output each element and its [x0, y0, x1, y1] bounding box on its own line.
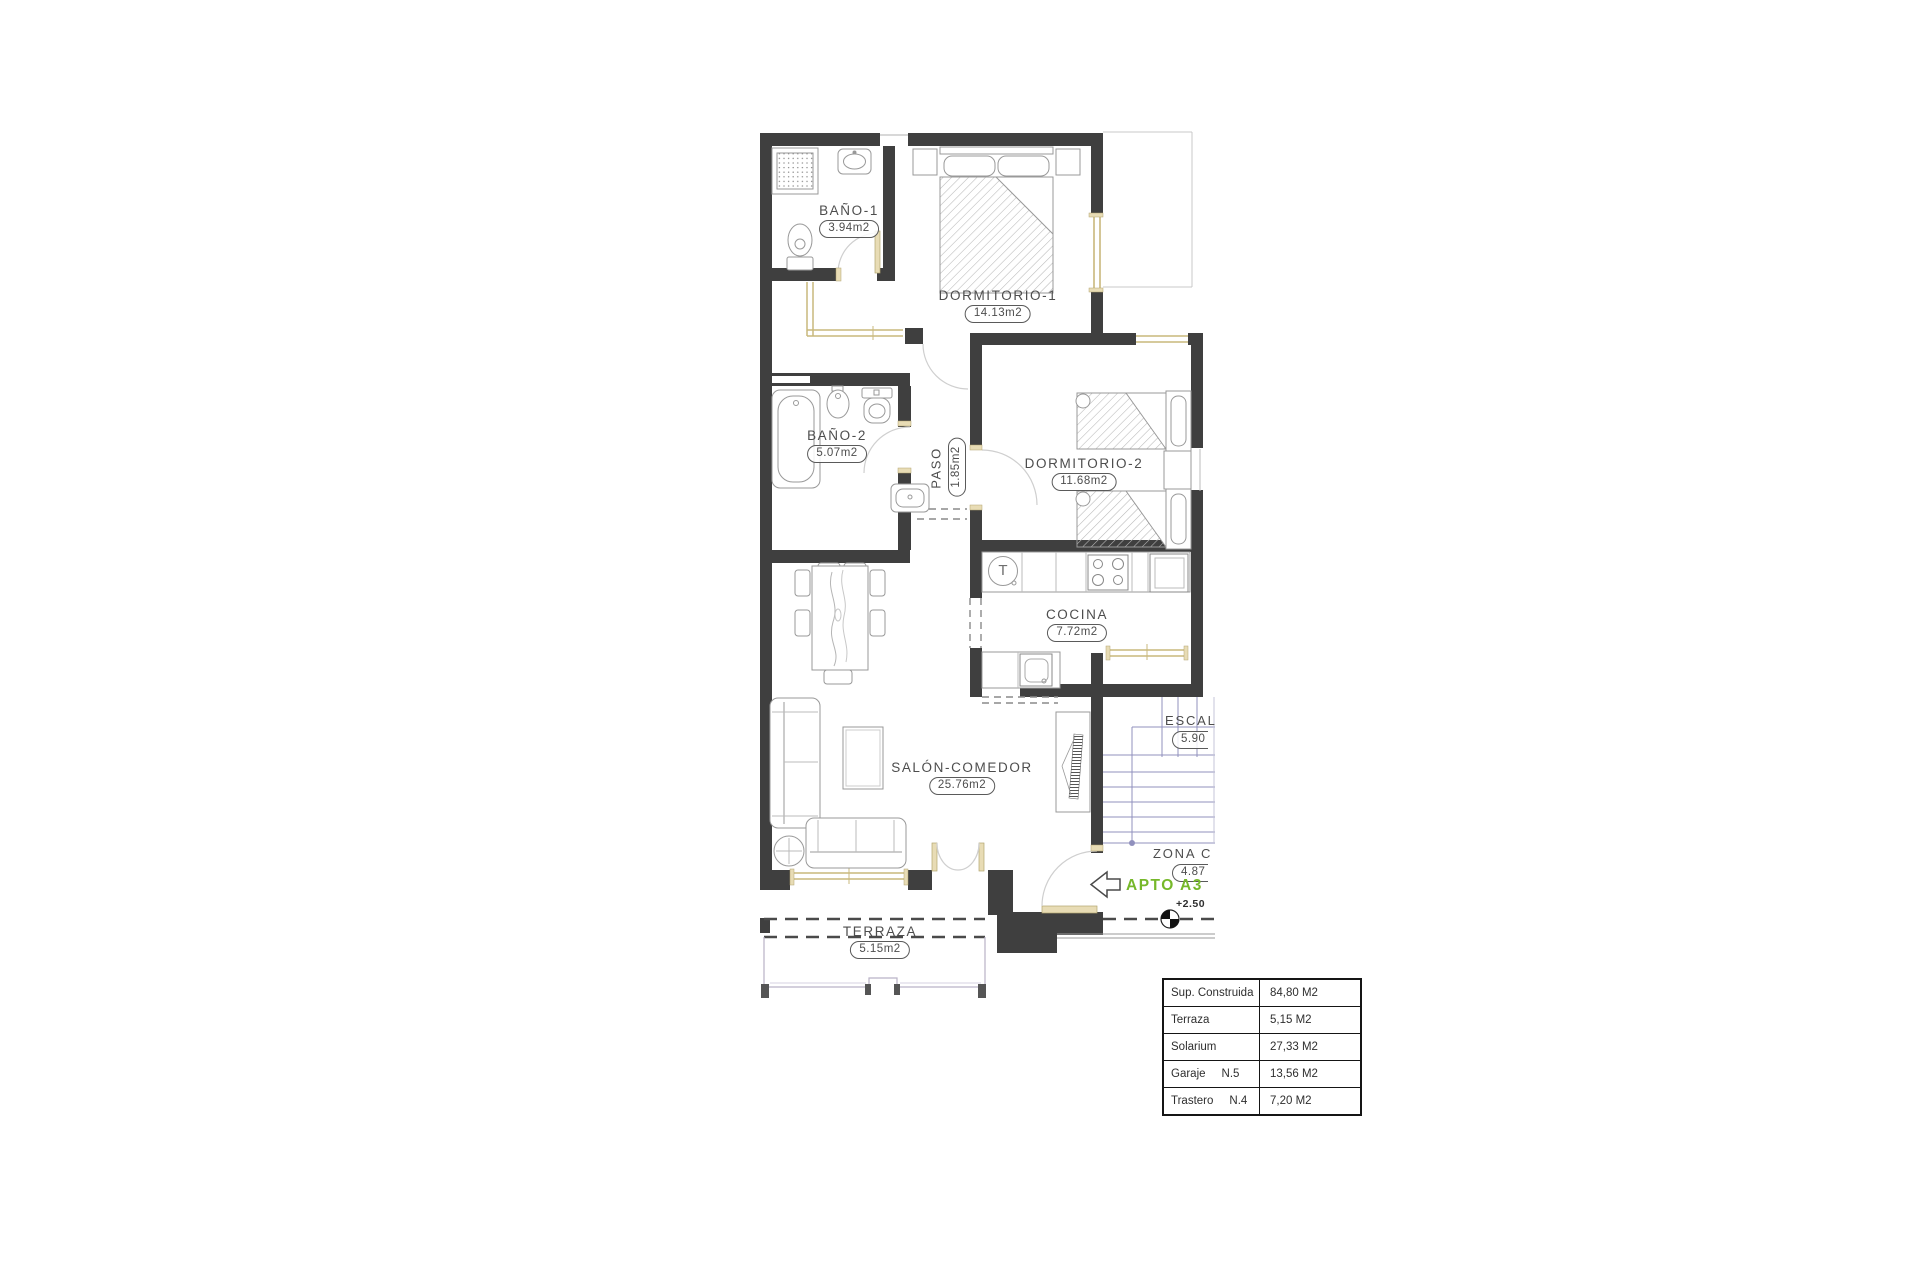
table-row: Solarium 27,33 M2	[1163, 1034, 1361, 1061]
zone-label-escalera: ESCAL	[1165, 713, 1217, 728]
room-label-dormitorio1: DORMITORIO-1 14.13m2	[939, 288, 1058, 323]
row-code: N.5	[1222, 1068, 1240, 1080]
room-name: BAÑO-2	[807, 428, 867, 443]
zone-area-escalera: 5.90	[1172, 729, 1208, 749]
row-label: Trastero	[1171, 1095, 1213, 1107]
area-summary-table: Sup. Construida 84,80 M2 Terraza 5,15 M2…	[1162, 978, 1362, 1116]
apartment-tag: APTO A3	[1126, 877, 1203, 895]
row-value: 27,33 M2	[1260, 1034, 1362, 1061]
living-furniture	[770, 563, 1090, 868]
room-area: 11.68m2	[1051, 473, 1116, 491]
table-row: Terraza 5,15 M2	[1163, 1007, 1361, 1034]
room-label-dormitorio2: DORMITORIO-2 11.68m2	[1025, 456, 1144, 491]
row-value: 13,56 M2	[1260, 1061, 1362, 1088]
floorplan-page: BAÑO-1 3.94m2 DORMITORIO-1 14.13m2 BAÑO-…	[0, 0, 1920, 1280]
row-label: Terraza	[1171, 1014, 1209, 1026]
room-name: SALÓN-COMEDOR	[891, 760, 1033, 775]
room-label-bano1: BAÑO-1 3.94m2	[819, 203, 879, 238]
room-name: PASO	[929, 447, 944, 489]
zone-area-value: 5.90	[1172, 731, 1208, 749]
room-name: TERRAZA	[843, 924, 917, 939]
room-name: DORMITORIO-1	[939, 288, 1058, 303]
row-value: 7,20 M2	[1260, 1088, 1362, 1116]
room-label-bano2: BAÑO-2 5.07m2	[807, 428, 867, 463]
adjacent-area-outline	[1103, 132, 1192, 287]
room-area: 3.94m2	[819, 220, 878, 238]
room-label-terraza: TERRAZA 5.15m2	[843, 924, 917, 959]
table-row: GarajeN.5 13,56 M2	[1163, 1061, 1361, 1088]
terrace-outline	[761, 919, 1214, 998]
room-area: 5.07m2	[807, 445, 866, 463]
row-value: 84,80 M2	[1260, 979, 1362, 1007]
room-name: BAÑO-1	[819, 203, 879, 218]
room-area: 5.15m2	[850, 941, 909, 959]
bedroom1-furniture	[913, 147, 1080, 293]
row-label: Solarium	[1171, 1041, 1216, 1053]
level-mark-text: +2.50	[1176, 898, 1205, 910]
room-area: 25.76m2	[929, 777, 995, 795]
table-row: TrasteroN.4 7,20 M2	[1163, 1088, 1361, 1116]
room-label-cocina: COCINA 7.72m2	[1046, 607, 1108, 642]
row-value: 5,15 M2	[1260, 1007, 1362, 1034]
room-name: COCINA	[1046, 607, 1108, 622]
row-code: N.4	[1229, 1095, 1247, 1107]
zone-label-zona-comun: ZONA C	[1153, 846, 1212, 861]
floor-plan-drawing	[0, 0, 1920, 1280]
washer-symbol: T	[998, 562, 1007, 579]
level-marker-icon	[1161, 910, 1179, 928]
apartment-arrow-icon	[1091, 872, 1120, 897]
row-label: Sup. Construida	[1171, 987, 1253, 999]
room-area-paso: 1.85m2	[946, 437, 966, 496]
room-area: 7.72m2	[1047, 624, 1106, 642]
room-name: DORMITORIO-2	[1025, 456, 1144, 471]
row-label: Garaje	[1171, 1068, 1206, 1080]
room-area: 1.85m2	[948, 437, 966, 496]
room-area: 14.13m2	[965, 305, 1031, 323]
room-label-salon-comedor: SALÓN-COMEDOR 25.76m2	[891, 760, 1033, 795]
table-row: Sup. Construida 84,80 M2	[1163, 979, 1361, 1007]
room-label-paso: PASO	[929, 447, 944, 489]
